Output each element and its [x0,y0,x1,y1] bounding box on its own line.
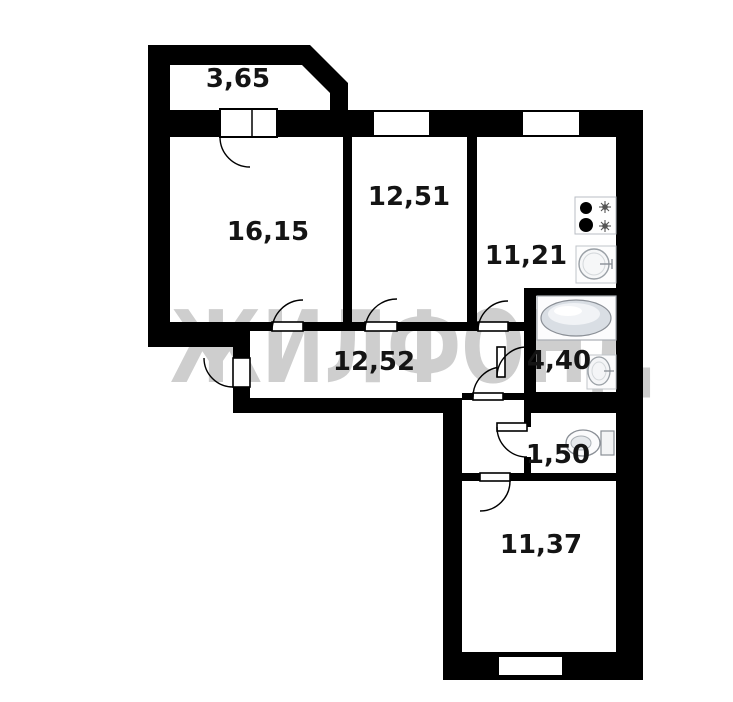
wall-segment [277,110,373,137]
wall-segment [430,110,522,137]
wall-segment [467,137,477,322]
wall-segment [148,45,170,347]
wall-segment [397,322,478,331]
wall-segment [508,322,524,331]
window-room-11 [498,656,563,676]
wall-segment [462,473,480,481]
wall-segment [233,398,462,413]
balcony-door-window-unit [220,109,277,137]
stove-icon [575,197,616,234]
kitchen-sink-icon [576,246,616,283]
wall-segment [250,322,272,331]
room-label-kitchen: 11,21 [485,241,567,271]
room-label-bathroom: 4,40 [527,346,591,376]
wall-segment [524,392,616,413]
room-label-room-12: 12,51 [368,182,450,212]
window-room-12 [373,111,430,136]
window-kitchen [522,111,580,136]
floor-plan: ЖИЛФОНД [0,0,733,702]
room-label-wc: 1,50 [526,440,590,470]
wall-segment [343,137,352,322]
bathtub-icon [537,296,616,340]
wash-basin-icon [587,355,616,389]
wall-segment [524,288,536,392]
wall-segment [616,110,643,680]
wall-segment [510,473,616,481]
wall-segment [524,288,616,296]
wall-segment [233,347,250,358]
wall-segment [443,398,462,680]
wall-segment [148,322,250,347]
wall-segment [462,393,473,400]
room-label-hallway: 12,52 [333,347,415,377]
room-label-room-16: 16,15 [227,217,309,247]
room-label-room-11: 11,37 [500,530,582,560]
wall-segment [303,322,365,331]
wall-segment [503,393,524,400]
room-label-balcony: 3,65 [206,64,270,94]
